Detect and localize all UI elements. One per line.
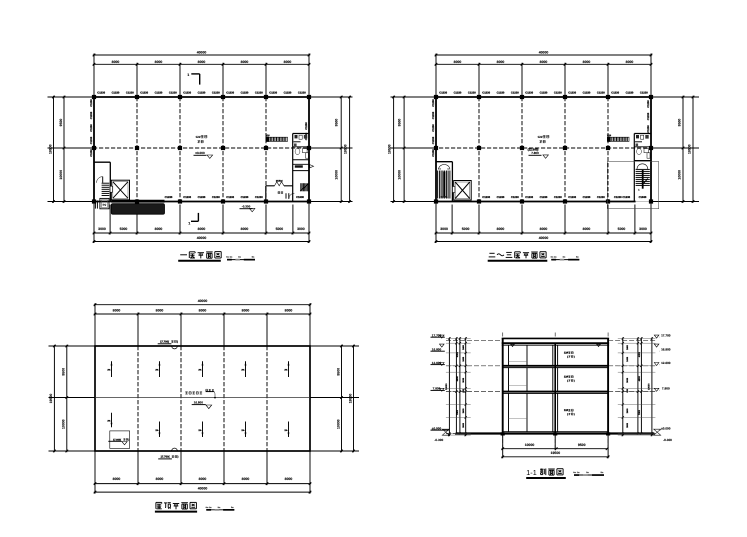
svg-text:DQ: DQ [103, 203, 107, 206]
svg-text:3000: 3000 [440, 227, 448, 231]
svg-text:10000: 10000 [678, 170, 682, 180]
svg-text:1m: 1m [554, 256, 557, 259]
svg-text:18000: 18000 [445, 383, 448, 390]
svg-text:C1230: C1230 [212, 196, 220, 199]
svg-text:9500: 9500 [578, 443, 586, 447]
svg-text:C1230: C1230 [647, 100, 650, 108]
svg-text:C1230: C1230 [540, 196, 548, 199]
svg-text:C1230: C1230 [90, 99, 93, 107]
svg-text:C1530: C1530 [296, 196, 304, 199]
svg-text:C1230: C1230 [583, 196, 591, 199]
svg-text:8000: 8000 [540, 60, 548, 64]
svg-text:2%: 2% [198, 369, 201, 372]
svg-text:C1230: C1230 [511, 91, 519, 94]
svg-text:C1230: C1230 [432, 99, 435, 107]
svg-text:C1230: C1230 [198, 196, 206, 199]
svg-text:C1230: C1230 [169, 91, 177, 94]
svg-text:7800: 7800 [638, 409, 641, 415]
svg-text:C1230: C1230 [468, 91, 476, 94]
svg-text:C1230: C1230 [255, 196, 263, 199]
svg-text:8000: 8000 [113, 308, 121, 312]
svg-text:10000: 10000 [525, 443, 535, 447]
svg-text:2%: 2% [155, 429, 158, 432]
svg-text:C1230: C1230 [568, 91, 576, 94]
svg-text:8000: 8000 [113, 477, 121, 481]
svg-text:8000: 8000 [583, 60, 591, 64]
svg-text:10000: 10000 [398, 170, 402, 180]
svg-text:3m: 3m [586, 471, 589, 474]
svg-text:C1230: C1230 [597, 91, 605, 94]
svg-text:12#: 12# [564, 409, 569, 412]
svg-text:M1524: M1524 [276, 179, 283, 182]
svg-text:8000: 8000 [156, 308, 164, 312]
svg-text:5000: 5000 [120, 227, 128, 231]
svg-text:19500: 19500 [688, 144, 692, 154]
svg-text:5m: 5m [601, 471, 604, 474]
svg-text:2400: 2400 [626, 344, 629, 350]
svg-text:1m: 1m [230, 256, 233, 259]
svg-text:5000: 5000 [618, 227, 626, 231]
svg-text:8000: 8000 [241, 227, 249, 231]
svg-text:C1230: C1230 [511, 196, 519, 199]
svg-text:3000: 3000 [98, 227, 106, 231]
svg-text:2%: 2% [241, 369, 244, 372]
svg-text:10000: 10000 [62, 419, 66, 429]
svg-text:C1230: C1230 [525, 196, 533, 199]
svg-text:C1230: C1230 [305, 122, 308, 130]
svg-text:17.700: 17.700 [661, 333, 671, 337]
svg-text:5000: 5000 [462, 227, 470, 231]
svg-text:4800: 4800 [638, 375, 641, 381]
svg-text:C1230: C1230 [241, 196, 249, 199]
svg-text:3000: 3000 [462, 377, 465, 383]
svg-text:C1230: C1230 [482, 196, 490, 199]
svg-text:5m: 5m [576, 256, 579, 259]
svg-text:C1230: C1230 [554, 196, 562, 199]
svg-text:9500: 9500 [678, 119, 682, 127]
svg-text:8000: 8000 [156, 477, 164, 481]
svg-text:C1230: C1230 [269, 91, 277, 94]
svg-text:5m: 5m [231, 506, 234, 509]
svg-text:1: 1 [188, 222, 190, 226]
svg-text:1m: 1m [209, 506, 212, 509]
svg-text:12.600: 12.600 [661, 361, 671, 365]
svg-text:9500: 9500 [335, 119, 339, 127]
svg-text:): ) [178, 456, 179, 459]
svg-text:C1230: C1230 [497, 91, 505, 94]
svg-text:18000: 18000 [647, 383, 650, 390]
svg-text:2%: 2% [198, 429, 201, 432]
svg-text:2%: 2% [107, 369, 110, 372]
svg-text:1m: 1m [577, 471, 580, 474]
svg-text:40000: 40000 [198, 299, 208, 303]
svg-text:8000: 8000 [241, 60, 249, 64]
svg-text:9500: 9500 [62, 368, 66, 376]
svg-text:C1230: C1230 [583, 91, 591, 94]
svg-text:19500: 19500 [48, 144, 52, 154]
svg-text:8000: 8000 [284, 60, 292, 64]
svg-text:8000: 8000 [155, 227, 163, 231]
svg-text:C1230: C1230 [568, 196, 576, 199]
svg-text:C1230: C1230 [155, 91, 163, 94]
svg-text:10000: 10000 [336, 419, 340, 429]
svg-text:C1230: C1230 [482, 91, 490, 94]
svg-text:10000: 10000 [335, 170, 339, 180]
svg-text:19500: 19500 [387, 144, 391, 154]
svg-text:C1230: C1230 [183, 196, 191, 199]
svg-text:3000: 3000 [297, 227, 305, 231]
svg-text:2%: 2% [284, 429, 287, 432]
svg-text:C1230: C1230 [597, 196, 605, 199]
svg-text:C1230: C1230 [198, 91, 206, 94]
svg-text:9500: 9500 [336, 368, 340, 376]
svg-text:C1230: C1230 [432, 136, 435, 144]
svg-text:C1230: C1230 [90, 136, 93, 144]
svg-text:8000: 8000 [497, 60, 505, 64]
svg-text:8000: 8000 [242, 308, 250, 312]
svg-text:7.800: 7.800 [662, 387, 670, 391]
svg-text:3000: 3000 [626, 422, 629, 428]
svg-text:4200: 4200 [456, 351, 459, 357]
svg-text:8000: 8000 [285, 308, 293, 312]
svg-text:C1230: C1230 [647, 125, 650, 133]
svg-text:C1230: C1230 [90, 111, 93, 119]
svg-text:3000: 3000 [639, 227, 647, 231]
svg-text:16.800: 16.800 [661, 347, 671, 351]
svg-text:40000: 40000 [197, 51, 207, 55]
svg-text:C1230: C1230 [497, 196, 505, 199]
svg-text:8000: 8000 [112, 60, 120, 64]
svg-text:1: 1 [187, 73, 189, 77]
svg-text:2%: 2% [284, 369, 287, 372]
svg-text:): ) [177, 341, 178, 344]
svg-text:C1230: C1230 [90, 149, 93, 157]
svg-text:2%: 2% [241, 429, 244, 432]
svg-text:FM1021: FM1021 [440, 195, 447, 198]
svg-text:3m: 3m [238, 256, 241, 259]
svg-text:C1230: C1230 [90, 124, 93, 132]
svg-text:4200: 4200 [638, 351, 641, 357]
svg-text:10000: 10000 [59, 170, 63, 180]
svg-text:40000: 40000 [539, 51, 549, 55]
svg-text:5000: 5000 [276, 227, 284, 231]
svg-text:C1230: C1230 [226, 196, 234, 199]
svg-text:C1230: C1230 [183, 91, 191, 94]
svg-text:8000: 8000 [242, 477, 250, 481]
svg-text:2400: 2400 [462, 344, 465, 350]
svg-text:C1230: C1230 [298, 91, 306, 94]
svg-text:C1530: C1530 [639, 196, 647, 199]
svg-text:9500: 9500 [59, 119, 63, 127]
svg-text:C1230: C1230 [140, 91, 148, 94]
svg-text:4800: 4800 [456, 375, 459, 381]
svg-text:40000: 40000 [197, 236, 207, 240]
svg-text:12#: 12# [564, 376, 569, 379]
svg-text:2%: 2% [155, 369, 158, 372]
svg-text:8000: 8000 [198, 60, 206, 64]
svg-text:C1230: C1230 [97, 91, 105, 94]
svg-text:±0.000: ±0.000 [195, 151, 205, 155]
svg-text:C1230: C1230 [284, 91, 292, 94]
svg-text:8000: 8000 [497, 227, 505, 231]
svg-text:C1230: C1230 [626, 91, 634, 94]
svg-text:C1230: C1230 [554, 91, 562, 94]
svg-text:8000: 8000 [540, 227, 548, 231]
svg-text:19500: 19500 [343, 144, 347, 154]
svg-text:C1230: C1230 [454, 91, 462, 94]
svg-text:12#: 12# [195, 135, 200, 139]
svg-text:8000: 8000 [199, 477, 207, 481]
svg-text:±0.000: ±0.000 [661, 426, 671, 430]
svg-text:1-1: 1-1 [526, 468, 536, 477]
svg-text:3m: 3m [218, 506, 221, 509]
svg-text:C1230: C1230 [439, 91, 447, 94]
svg-text:2400: 2400 [626, 408, 629, 414]
svg-text:12#: 12# [537, 135, 542, 139]
svg-text:9500: 9500 [398, 119, 402, 127]
svg-text:3000: 3000 [626, 377, 629, 383]
svg-text:-0.300: -0.300 [434, 438, 443, 442]
svg-text:C1230: C1230 [432, 149, 435, 157]
svg-text:C1230: C1230 [126, 91, 134, 94]
svg-text:C1230: C1230 [432, 124, 435, 132]
svg-text:19500: 19500 [348, 394, 352, 404]
svg-text:16.800: 16.800 [194, 400, 204, 404]
svg-text:C1230: C1230 [540, 91, 548, 94]
svg-text:C1230: C1230 [226, 91, 234, 94]
svg-text:17.700(: 17.700( [160, 341, 169, 344]
svg-text:C1230: C1230 [212, 91, 220, 94]
svg-text:C1230 C1230: C1230 C1230 [614, 196, 631, 199]
svg-text:C1230: C1230 [241, 91, 249, 94]
svg-text:C1230: C1230 [611, 91, 619, 94]
svg-text:5m: 5m [252, 256, 255, 259]
svg-text:8000: 8000 [454, 60, 462, 64]
svg-text:19500: 19500 [551, 451, 561, 455]
svg-text:2%: 2% [107, 420, 110, 423]
svg-text:C1230: C1230 [432, 111, 435, 119]
svg-text:8000: 8000 [198, 227, 206, 231]
svg-text:C1230: C1230 [525, 91, 533, 94]
svg-text:8000: 8000 [155, 60, 163, 64]
svg-text:8000: 8000 [199, 308, 207, 312]
svg-text:C1230: C1230 [640, 91, 648, 94]
svg-text:0m: 0m [573, 471, 576, 474]
svg-text:17.700(: 17.700( [160, 456, 169, 459]
svg-text:7800: 7800 [456, 409, 459, 415]
svg-text:8000: 8000 [626, 60, 634, 64]
svg-text:2400: 2400 [462, 356, 465, 362]
svg-text:C1230: C1230 [647, 112, 650, 120]
svg-text:3m: 3m [563, 256, 566, 259]
svg-text:C1230: C1230 [255, 91, 263, 94]
svg-text:7.800: 7.800 [531, 151, 539, 155]
svg-text:8000: 8000 [285, 477, 293, 481]
svg-text:2400: 2400 [626, 356, 629, 362]
svg-text:C1230: C1230 [165, 196, 173, 199]
svg-text:8000: 8000 [583, 227, 591, 231]
svg-text:12#: 12# [564, 352, 569, 355]
svg-text:40000: 40000 [539, 236, 549, 240]
svg-text:-0.300: -0.300 [663, 438, 672, 442]
svg-text:3000: 3000 [462, 422, 465, 428]
svg-text:19500: 19500 [49, 394, 53, 404]
svg-text:2400: 2400 [462, 408, 465, 414]
svg-text:-0.300: -0.300 [242, 205, 251, 209]
svg-text:C1230: C1230 [112, 91, 120, 94]
svg-text:40000: 40000 [198, 486, 208, 490]
